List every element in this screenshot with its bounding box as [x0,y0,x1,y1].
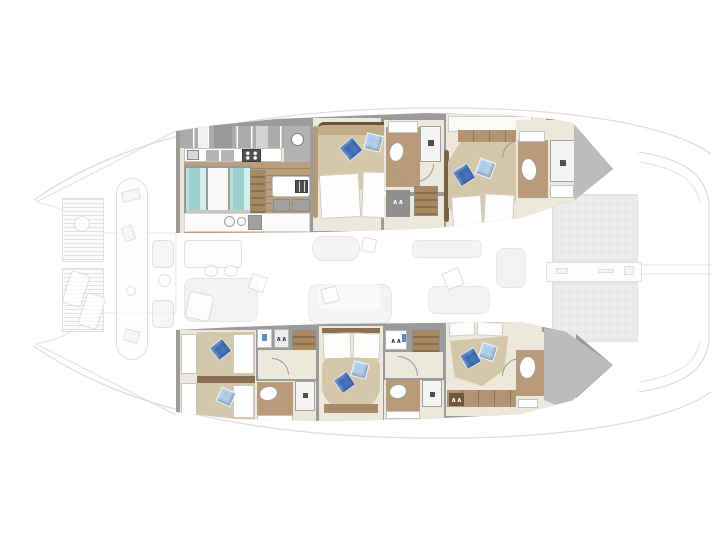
locker-towel [262,334,267,341]
single-bed-head [181,334,197,374]
helm-seat [496,248,526,288]
bed-sheet [449,321,476,336]
wardrobe: ∧∧ [386,190,410,217]
drain-icon [303,393,308,398]
bed-sheet [323,333,352,360]
galley-aft-appliance [248,215,262,230]
foredeck-table [158,274,171,287]
island-appliance [292,199,310,212]
hanger-locker: ∧∧ [449,393,464,406]
island-appliance [273,199,290,212]
vanity-locker [518,399,538,408]
aft-bench [412,240,482,258]
galley-cabinet-light [256,126,268,148]
counter-module [221,150,234,161]
foredeck-seat [152,240,174,268]
foredeck-seat [152,300,174,328]
vanity-sink [388,121,418,133]
bow-hatch [74,216,90,232]
davit-lines [640,265,712,274]
cooktop-icon [242,149,261,162]
scatter-cushion [361,237,377,253]
single-bed-head [181,383,197,418]
bed-sheet [353,333,381,360]
stern-step-inner [640,162,700,382]
cockpit-table [312,236,360,261]
bed-bench [324,404,378,413]
bed-sheet [319,173,361,219]
bow-inner-top [36,202,176,233]
aft-bench [428,286,490,314]
extractor-fan-icon [291,133,304,146]
galley-aft-counter [184,213,310,232]
locker-towel [402,334,406,342]
deck-fitting [126,286,136,296]
stern-cleat [598,269,614,273]
drain-icon [428,140,434,146]
bow-deck-diagonal-bottom [36,344,176,415]
catamaran-floor-plan: ∧∧ [0,0,720,539]
drain-icon [560,160,566,166]
galley-sink-icon [224,216,235,227]
counter-module [206,150,219,161]
fridge-unit [186,168,206,210]
fridge-unit-white [208,168,228,210]
stern-cleat [556,268,568,274]
galley-stairs [250,170,266,216]
bed-sheet [477,321,504,336]
transom-platform-top [552,194,638,262]
fridge-unit [230,168,250,210]
saloon-dining-table [184,240,242,268]
bed-rail [313,126,318,218]
vanity-locker [550,185,574,198]
bow-deck-diagonal-top [36,131,176,202]
wardrobe: ∧∧ [274,329,289,348]
island-sink-icon [295,180,308,193]
appliance-icon [187,150,199,160]
galley-sink-icon [237,217,246,226]
bed-sheet [233,385,254,418]
bed-sheet [451,195,483,227]
vanity-sink [519,131,545,142]
galley-cabinet-dark [214,126,232,148]
saloon-chair [224,265,238,277]
drain-icon [430,392,435,397]
stern-fitting [624,266,634,275]
bed-frame [197,376,255,383]
stern-platform-outline [638,152,709,392]
saloon-chair [204,265,218,277]
bed-sheet [233,334,254,374]
companionway-stairs [414,186,438,216]
galley-cabinet-light [198,126,208,148]
vanity-sink [386,411,420,419]
